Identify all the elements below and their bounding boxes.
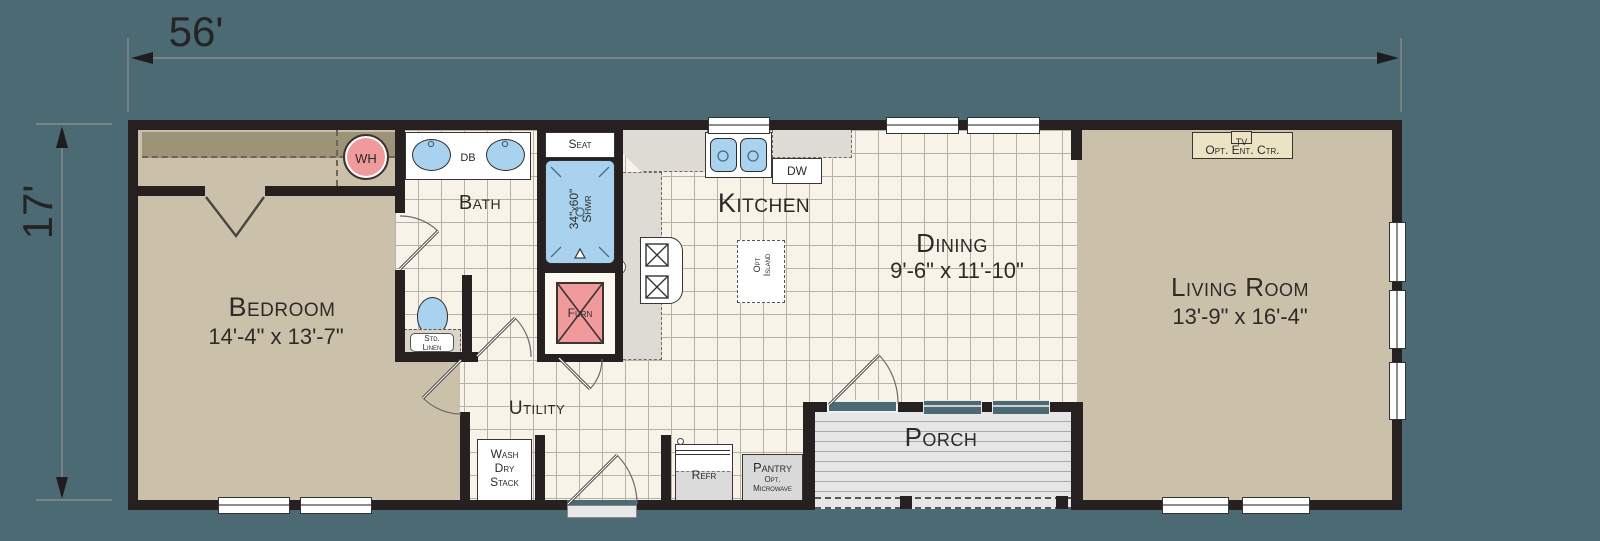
range <box>640 237 683 304</box>
shower-abbr-label: Shwr <box>581 152 594 266</box>
shower: 34"x60" Shwr <box>545 160 615 264</box>
porch-label: Porch <box>905 422 978 453</box>
dimension-arrow <box>131 52 1399 64</box>
washer-label: Stack <box>478 475 531 489</box>
porch-wall-top <box>898 402 923 412</box>
exterior-wall-right <box>1392 418 1402 510</box>
closet-front-wall <box>265 186 405 196</box>
exterior-wall-top <box>1038 120 1402 130</box>
refrigerator-hinge <box>677 438 684 445</box>
exterior-wall-left <box>128 120 138 510</box>
bedroom-floor-extension <box>395 362 460 500</box>
exterior-wall-bottom <box>1308 500 1402 510</box>
kitchen-sink-basin <box>710 138 737 172</box>
washer-label: Wash <box>478 447 531 461</box>
porch-window <box>923 400 982 415</box>
living-room-side-window <box>1389 362 1406 420</box>
linen-label: Linen <box>411 343 453 352</box>
kitchen-counter-right-of-sink <box>772 130 852 158</box>
washer-label: Dry <box>478 461 531 475</box>
dimension-line-height <box>36 124 112 500</box>
porch-post <box>1056 496 1068 509</box>
tv: TV <box>1231 131 1252 144</box>
bedroom-dims: 14'-4" x 13'-7" <box>208 324 343 350</box>
dining-window <box>967 117 1040 134</box>
porch-wall-left <box>803 402 815 510</box>
refrigerator: Refr <box>675 444 733 503</box>
porch-post <box>900 496 912 509</box>
bedroom-window <box>300 497 372 514</box>
utility-wall-stub <box>535 435 545 503</box>
shower-seat-label: Seat <box>569 137 592 151</box>
porch-entry-door-slab <box>827 400 898 413</box>
island-label: Opt <box>752 233 762 297</box>
overall-width-dimension: 56' <box>169 8 224 56</box>
furnace: Furn <box>556 282 604 344</box>
bedroom-utility-wall <box>460 412 470 503</box>
living-room-window <box>1242 497 1310 514</box>
vanity-sink <box>486 139 525 171</box>
tv-label: TV <box>1236 137 1248 147</box>
closet-divider <box>336 130 338 186</box>
dishwasher-label: DW <box>787 164 807 178</box>
dining-living-wall-stub <box>1071 130 1082 160</box>
living-room-label: Living Room <box>1171 272 1309 303</box>
exterior-wall-top <box>128 120 708 130</box>
exterior-wall-right <box>1392 347 1402 362</box>
double-bowl-label: DB <box>460 152 475 164</box>
exterior-wall-right <box>1392 120 1402 222</box>
bath-label: Bath <box>459 192 501 215</box>
pantry-label: Pantry <box>743 461 802 475</box>
water-heater: WH <box>343 134 389 180</box>
bedroom-label: Bedroom <box>228 292 335 323</box>
dining-window <box>886 117 959 134</box>
vanity-sink <box>412 139 451 171</box>
closet-front-wall <box>138 186 205 196</box>
living-room-window <box>1162 497 1229 514</box>
kitchen-window <box>708 117 770 134</box>
refrigerator-label: Refr <box>692 468 717 482</box>
exterior-wall-top <box>768 120 886 130</box>
porch-wall-top <box>1048 402 1083 412</box>
living-room-side-window <box>1389 222 1406 282</box>
exterior-wall-bottom <box>128 500 218 510</box>
utility-label: Utility <box>509 398 565 420</box>
dimension-arrow <box>56 126 68 499</box>
pantry-microwave-label: Microwave <box>743 484 802 493</box>
washer-dryer-stack: Wash Dry Stack <box>477 439 532 503</box>
toilet-nook-wall <box>462 275 472 362</box>
optional-island: Opt Island <box>737 240 785 303</box>
exterior-wall-bottom <box>1083 500 1162 510</box>
dining-label: Dining <box>916 228 988 259</box>
dishwasher: DW <box>772 158 822 184</box>
dimension-line-width <box>128 38 1401 112</box>
overall-height-dimension: 17' <box>14 185 62 240</box>
back-door-threshold <box>567 505 637 518</box>
bedroom-bath-wall <box>395 270 405 362</box>
kitchen-sink-basin <box>740 138 767 172</box>
water-heater-label: WH <box>345 151 387 166</box>
living-room-dims: 13'-9" x 16'-4" <box>1172 304 1307 330</box>
kitchen-label: Kitchen <box>718 188 810 219</box>
porch-wall-right <box>1071 402 1083 510</box>
dining-dims: 9'-6" x 11'-10" <box>890 258 1024 284</box>
pantry-opt-label: Opt. <box>743 475 802 484</box>
living-room-side-window <box>1389 290 1406 349</box>
linen-label: Std. <box>411 334 453 343</box>
exterior-wall-bottom <box>1227 500 1242 510</box>
utility-wall-stub <box>661 435 671 503</box>
bedroom-bath-wall <box>395 130 405 213</box>
furnace-label: Furn <box>568 306 593 320</box>
bedroom-window <box>218 497 290 514</box>
porch-railing <box>815 497 1071 509</box>
porch-wall-top <box>803 402 827 412</box>
porch-window <box>992 400 1050 415</box>
floorplan-page: { "plan": { "overall_width": "56'", "ove… <box>0 0 1600 541</box>
island-label: Island <box>762 233 772 297</box>
